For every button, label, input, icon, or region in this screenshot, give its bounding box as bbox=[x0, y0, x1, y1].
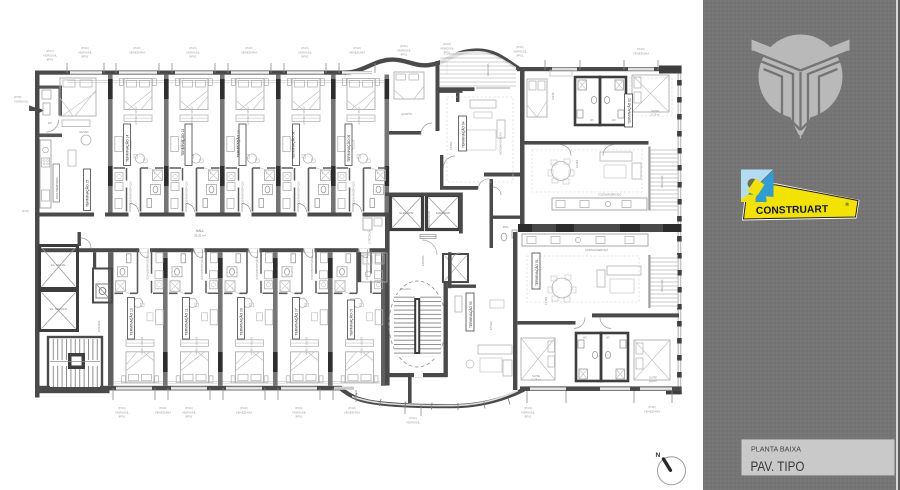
svg-text:PAV. TIPO: PAV. TIPO bbox=[751, 458, 805, 474]
svg-text:TERMINAÇÃO 15: TERMINAÇÃO 15 bbox=[85, 180, 90, 207]
svg-text:(P.02): (P.02) bbox=[240, 406, 248, 410]
svg-text:QUARTO: QUARTO bbox=[401, 112, 412, 116]
svg-text:TERMINAÇÃO 10: TERMINAÇÃO 10 bbox=[236, 130, 241, 157]
svg-text:TERMINAÇÃO 07: TERMINAÇÃO 07 bbox=[294, 308, 299, 335]
svg-text:SUITE: SUITE bbox=[551, 92, 555, 100]
svg-text:ESTAR: ESTAR bbox=[545, 297, 548, 305]
svg-text:SUITE: SUITE bbox=[532, 374, 540, 378]
svg-text:EL. SOCIAL: EL. SOCIAL bbox=[51, 263, 66, 267]
svg-text:BWC: BWC bbox=[503, 226, 509, 229]
svg-text:8P01: 8P01 bbox=[525, 415, 532, 419]
svg-text:ANEXO: ANEXO bbox=[649, 380, 658, 383]
svg-text:(P.01): (P.01) bbox=[400, 44, 408, 48]
svg-text:ESCADA: ESCADA bbox=[97, 320, 101, 332]
svg-text:TERMINAÇÃO 09: TERMINAÇÃO 09 bbox=[239, 308, 244, 335]
svg-text:8P01: 8P01 bbox=[190, 55, 197, 59]
svg-text:SUITE: SUITE bbox=[651, 109, 659, 113]
svg-text:VENEZIANA: VENEZIANA bbox=[644, 410, 660, 414]
svg-text:TERMINAÇÃO 04: TERMINAÇÃO 04 bbox=[460, 121, 465, 148]
svg-text:(P.01): (P.01) bbox=[295, 406, 303, 410]
svg-text:EL. SERVIÇO: EL. SERVIÇO bbox=[50, 307, 67, 311]
svg-text:TERMINAÇÃO 02: TERMINAÇÃO 02 bbox=[626, 98, 631, 124]
svg-text:(P.01): (P.01) bbox=[81, 46, 89, 50]
svg-text:VENEZIANA: VENEZIANA bbox=[344, 411, 360, 415]
svg-text:ESTAR: ESTAR bbox=[449, 141, 453, 150]
svg-text:(P.07): (P.07) bbox=[46, 49, 54, 53]
svg-text:(P.05): (P.05) bbox=[14, 95, 22, 99]
svg-text:VENEZIANA: VENEZIANA bbox=[633, 52, 649, 56]
svg-text:ELEVADOR: ELEVADOR bbox=[436, 211, 450, 215]
svg-text:(P.02): (P.02) bbox=[133, 46, 141, 50]
svg-text:WC: WC bbox=[612, 119, 616, 122]
svg-text:VARANDA: VARANDA bbox=[486, 63, 490, 76]
svg-text:ESPERA: ESPERA bbox=[421, 255, 425, 266]
svg-text:(P.04): (P.04) bbox=[22, 209, 29, 213]
svg-text:VENEZIANA: VENEZIANA bbox=[236, 411, 252, 415]
svg-text:8P01: 8P01 bbox=[47, 58, 54, 62]
svg-text:(P.01): (P.01) bbox=[516, 45, 524, 49]
svg-text:ESTAR: ESTAR bbox=[576, 160, 579, 168]
svg-text:TERMINAÇÃO 06: TERMINAÇÃO 06 bbox=[346, 135, 351, 162]
svg-text:VARANDA: VARANDA bbox=[660, 175, 664, 188]
svg-text:8P01: 8P01 bbox=[296, 415, 303, 419]
svg-text:HIDROMASSAGEM: HIDROMASSAGEM bbox=[500, 132, 503, 155]
svg-text:COZINHA/SERVIÇO: COZINHA/SERVIÇO bbox=[598, 194, 621, 197]
svg-text:(P.01): (P.01) bbox=[189, 46, 197, 50]
svg-text:(P.01): (P.01) bbox=[301, 46, 309, 50]
svg-text:(P.01): (P.01) bbox=[185, 406, 193, 410]
svg-text:S.TÉCNICA: S.TÉCNICA bbox=[369, 230, 372, 244]
svg-text:N: N bbox=[656, 452, 661, 459]
svg-text:COZ./SERVIÇO: COZ./SERVIÇO bbox=[55, 177, 59, 199]
svg-text:ESTAR: ESTAR bbox=[489, 321, 493, 330]
svg-text:TERMINAÇÃO 01: TERMINAÇÃO 01 bbox=[534, 259, 539, 286]
svg-text:TERMINAÇÃO 08: TERMINAÇÃO 08 bbox=[291, 132, 296, 159]
svg-text:8P01: 8P01 bbox=[82, 55, 89, 59]
svg-text:VARANDA: VARANDA bbox=[660, 279, 664, 292]
svg-text:(P.02): (P.02) bbox=[245, 46, 253, 50]
svg-text:TERMINAÇÃO 03: TERMINAÇÃO 03 bbox=[468, 301, 473, 328]
svg-text:VIDRO/SIL: VIDRO/SIL bbox=[14, 100, 29, 104]
svg-text:SUITE: SUITE bbox=[649, 376, 657, 380]
svg-text:WC: WC bbox=[583, 337, 587, 340]
svg-text:CONSTRUART: CONSTRUART bbox=[756, 204, 829, 217]
svg-text:8P01: 8P01 bbox=[302, 55, 309, 59]
svg-text:TERMINAÇÃO 12: TERMINAÇÃO 12 bbox=[180, 129, 185, 156]
svg-text:(P.02): (P.02) bbox=[648, 405, 656, 409]
svg-text:ELEVADOR: ELEVADOR bbox=[400, 211, 414, 215]
svg-text:ESTAR: ESTAR bbox=[79, 130, 88, 134]
svg-text:(P.02): (P.02) bbox=[348, 406, 356, 410]
svg-text:TERMINAÇÃO 11: TERMINAÇÃO 11 bbox=[184, 308, 189, 335]
svg-text:8P01: 8P01 bbox=[517, 54, 524, 58]
svg-text:ESCADA: ESCADA bbox=[400, 287, 411, 291]
svg-text:PLANTA BAIXA: PLANTA BAIXA bbox=[751, 445, 802, 454]
svg-text:VENEZIANA: VENEZIANA bbox=[155, 411, 171, 415]
svg-text:WC: WC bbox=[590, 119, 594, 122]
svg-text:(P.01): (P.01) bbox=[118, 406, 126, 410]
svg-text:WC: WC bbox=[606, 337, 610, 340]
svg-text:COZINHA/SERVIÇO: COZINHA/SERVIÇO bbox=[585, 249, 608, 252]
svg-text:VENEZIANA: VENEZIANA bbox=[129, 51, 145, 55]
svg-text:(P.03): (P.03) bbox=[524, 406, 532, 410]
svg-text:8P01: 8P01 bbox=[186, 415, 193, 419]
svg-text:TERMINAÇÃO 13: TERMINAÇÃO 13 bbox=[129, 308, 134, 335]
svg-text:8P01: 8P01 bbox=[119, 415, 126, 419]
svg-text:TERMINAÇÃO 14: TERMINAÇÃO 14 bbox=[125, 135, 130, 162]
svg-text:(P.01): (P.01) bbox=[409, 416, 417, 420]
svg-text:(P.02): (P.02) bbox=[159, 406, 167, 410]
svg-text:11,28 m²: 11,28 m² bbox=[531, 379, 540, 382]
svg-text:VIDRO/SIL: VIDRO/SIL bbox=[406, 421, 421, 425]
svg-text:TERMINAÇÃO 05: TERMINAÇÃO 05 bbox=[349, 309, 354, 336]
svg-text:WC: WC bbox=[48, 121, 52, 125]
svg-text:(P.02): (P.02) bbox=[637, 47, 645, 51]
svg-text:HALL: HALL bbox=[196, 229, 205, 233]
svg-text:VENEZIANA: VENEZIANA bbox=[241, 51, 257, 55]
svg-text:31,31 m²: 31,31 m² bbox=[194, 234, 206, 238]
svg-text:8P01: 8P01 bbox=[401, 53, 408, 57]
svg-text:(P.02): (P.02) bbox=[353, 46, 361, 50]
svg-text:11,28 m²: 11,28 m² bbox=[650, 114, 659, 117]
svg-text:VENEZIANA: VENEZIANA bbox=[349, 51, 365, 55]
svg-text:(P.03): (P.03) bbox=[443, 42, 451, 46]
